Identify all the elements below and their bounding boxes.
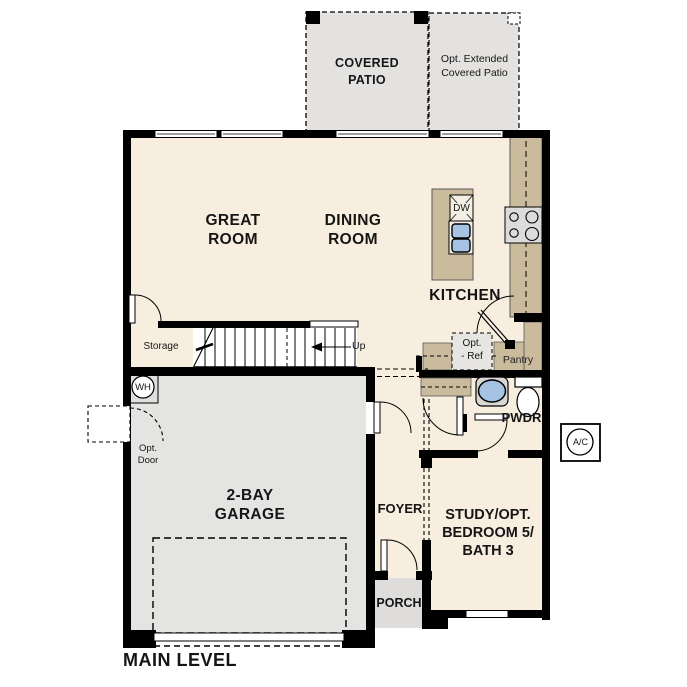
optional-door-label-line1: Opt.: [130, 443, 166, 455]
closet-door-leaf: [457, 397, 463, 435]
study-label: STUDY/OPT. BEDROOM 5/ BATH 3: [427, 506, 549, 560]
dishwasher-label: DW: [449, 203, 474, 214]
sink-basin-bottom: [452, 239, 470, 252]
porch-label: PORCH: [374, 596, 424, 610]
wall-garage-right-lower: [366, 434, 375, 648]
garage-entry-door-leaf: [374, 402, 380, 433]
garage-label-line2: GARAGE: [190, 505, 310, 524]
extended-patio-label: Opt. Extended Covered Patio: [430, 52, 519, 80]
study-label-line3: BATH 3: [427, 542, 549, 560]
floor-plan-drawing: [0, 0, 687, 687]
optional-door-label-line2: Door: [130, 455, 166, 467]
garage-label: 2-BAY GARAGE: [190, 486, 310, 524]
pantry-label: Pantry: [494, 354, 542, 366]
extended-patio-label-line2: Covered Patio: [430, 66, 519, 80]
foyer-label: FOYER: [375, 501, 425, 516]
burner-1: [510, 213, 518, 221]
wall-porch-left: [366, 571, 388, 580]
toilet-tank: [515, 377, 542, 387]
optional-refrigerator-label: Opt. - Ref: [452, 338, 492, 363]
window-study: [466, 611, 508, 618]
dining-room-label-line1: DINING: [293, 211, 413, 230]
patio-post-right: [414, 11, 428, 24]
ac-label: A/C: [561, 437, 600, 447]
garage-label-line1: 2-BAY: [190, 486, 310, 505]
wall-study-top-right: [508, 450, 550, 458]
study-label-line1: STUDY/OPT.: [427, 506, 549, 524]
wall-garage-bottom-right: [342, 630, 370, 648]
powder-sink: [479, 380, 506, 402]
water-heater-label: WH: [128, 382, 158, 393]
up-label: Up: [352, 340, 378, 352]
floor-plan-page: COVERED PATIO Opt. Extended Covered Pati…: [0, 0, 687, 687]
storage-label: Storage: [131, 341, 191, 352]
patio-corner-notch: [508, 13, 520, 24]
optional-door-label: Opt. Door: [130, 443, 166, 466]
plan-title: MAIN LEVEL: [123, 650, 323, 671]
optional-door-box: [88, 406, 130, 442]
extended-patio-label-line1: Opt. Extended: [430, 52, 519, 66]
great-room-label-line1: GREAT: [173, 211, 293, 230]
great-room-label-line2: ROOM: [173, 230, 293, 249]
wall-garage-top: [123, 367, 375, 376]
wall-pantry-top: [514, 313, 542, 322]
garage-door: [154, 633, 344, 641]
pantry-door-hinge: [505, 340, 515, 349]
powder-label: PWDR: [494, 410, 549, 425]
wall-nook-stub: [416, 356, 422, 372]
dining-room-label: DINING ROOM: [293, 211, 413, 249]
burner-4: [526, 228, 539, 241]
front-door-leaf: [381, 540, 387, 571]
kitchen-label: KITCHEN: [427, 287, 503, 305]
wall-stair-header: [158, 321, 310, 328]
wall-porch-corner: [422, 610, 448, 629]
patio-post-left: [306, 11, 320, 24]
covered-patio-label: COVERED PATIO: [307, 55, 427, 88]
great-room-label: GREAT ROOM: [173, 211, 293, 249]
storage-door-leaf: [129, 295, 135, 323]
covered-patio-label-line1: COVERED: [307, 55, 427, 72]
stair-handrail: [310, 321, 358, 327]
wall-garage-bottom-left: [123, 630, 156, 648]
covered-patio-label-line2: PATIO: [307, 72, 427, 89]
dining-room-label-line2: ROOM: [293, 230, 413, 249]
burner-3: [510, 229, 518, 237]
optional-refrigerator-label-line1: Opt.: [452, 338, 492, 351]
sink-basin-top: [452, 224, 470, 238]
study-label-line2: BEDROOM 5/: [427, 524, 549, 542]
wall-garage-right-upper: [366, 367, 375, 402]
wall-optional-block: [421, 450, 432, 468]
burner-2: [526, 211, 538, 223]
optional-refrigerator-label-line2: - Ref: [452, 351, 492, 364]
